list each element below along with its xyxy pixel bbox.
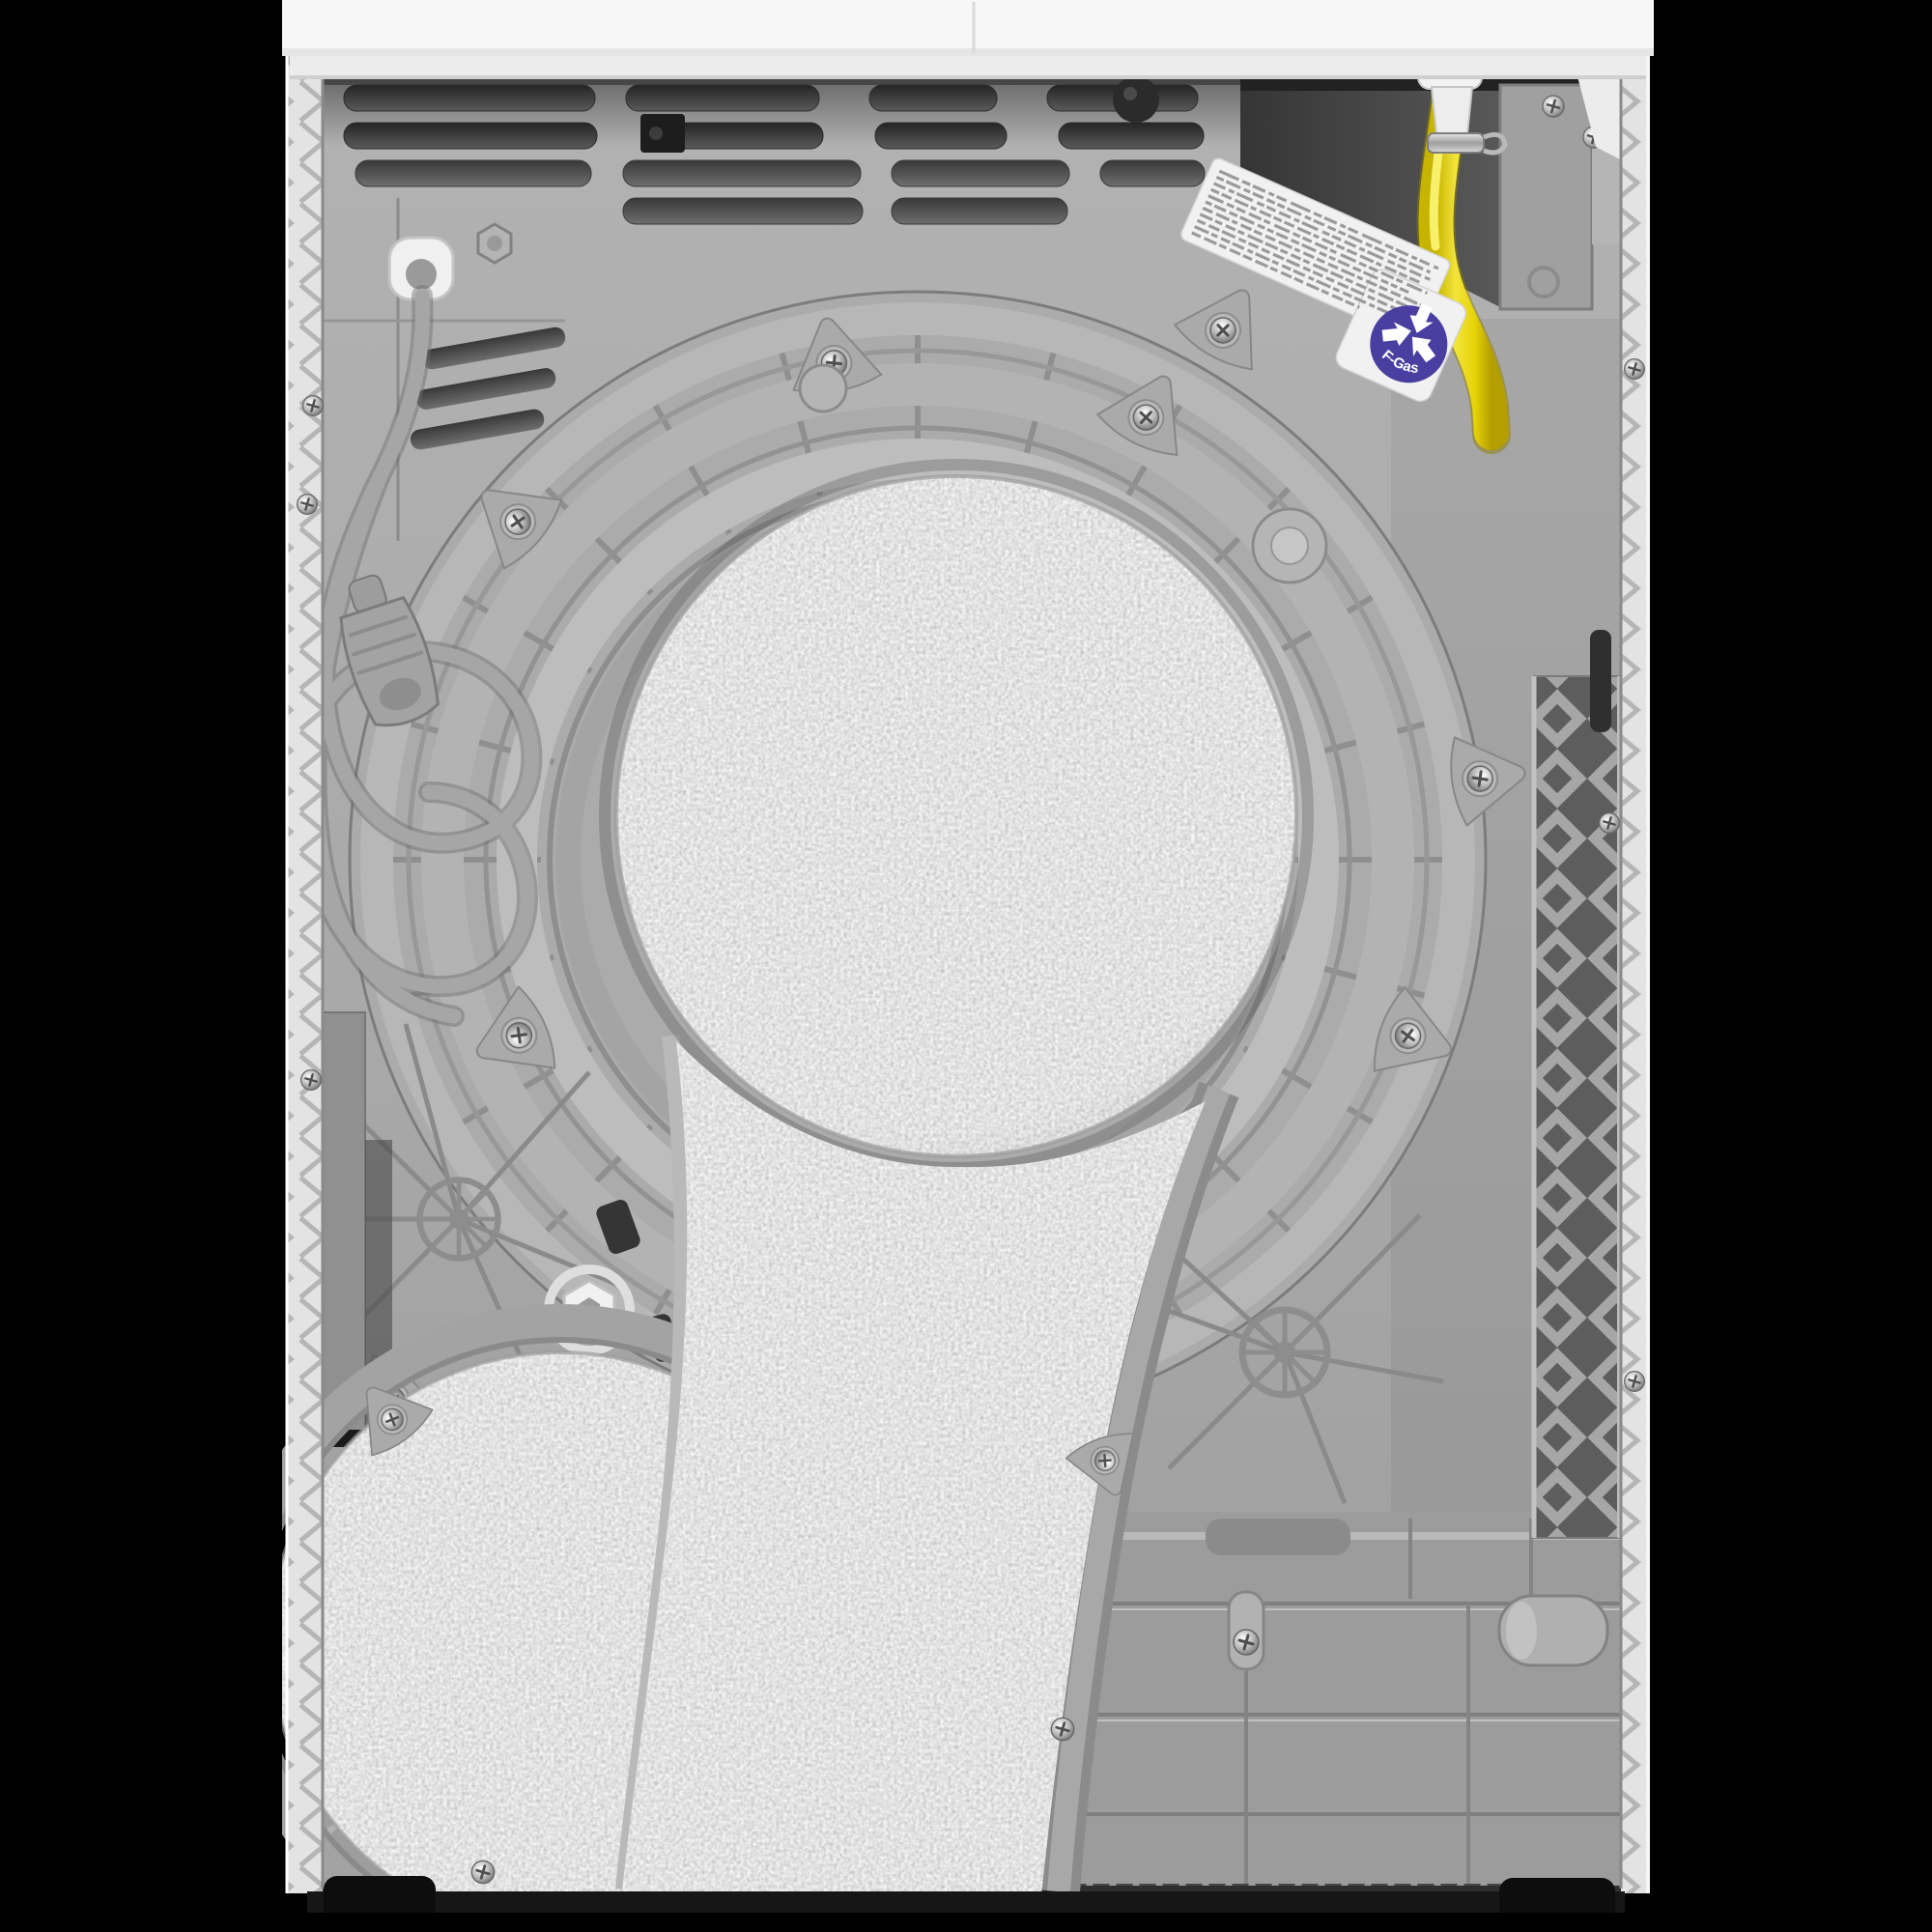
hex-bolt <box>478 224 511 263</box>
rubber-grommet <box>1113 76 1159 123</box>
molded-hub <box>420 1180 498 1259</box>
top-panel <box>282 0 1654 79</box>
left-side-edge <box>286 56 323 1893</box>
molded-hub <box>1242 1310 1327 1395</box>
right-side-edge <box>1621 56 1650 1893</box>
photo-canvas: F-Gas <box>0 0 1932 1932</box>
lattice-panel <box>1534 630 1621 1538</box>
latch-slot <box>1590 630 1611 732</box>
container-box <box>1500 85 1592 309</box>
dryer: F-Gas <box>240 0 1654 1932</box>
handle-recess <box>1206 1519 1350 1555</box>
pump-cylinder <box>1499 1596 1607 1665</box>
dryer-rear-photo: F-Gas <box>0 0 1932 1932</box>
